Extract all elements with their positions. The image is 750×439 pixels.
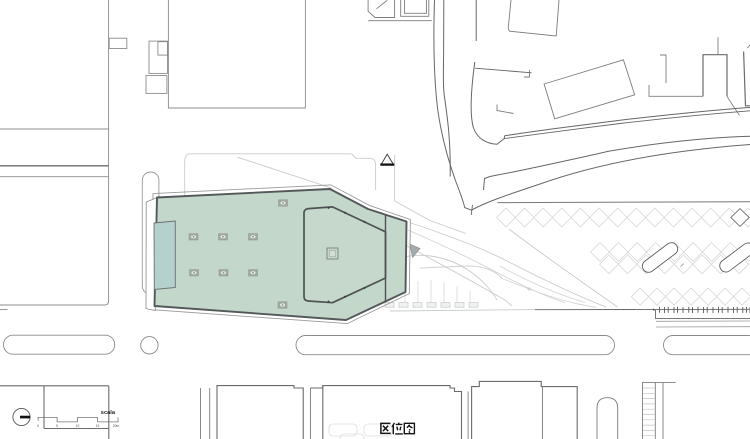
svg-text:10: 10 — [76, 424, 80, 428]
svg-text:0: 0 — [37, 424, 39, 428]
svg-text:20m: 20m — [113, 424, 120, 428]
svg-text:5: 5 — [56, 424, 58, 428]
svg-text:scala: scala — [101, 410, 116, 416]
svg-text:15: 15 — [96, 424, 100, 428]
